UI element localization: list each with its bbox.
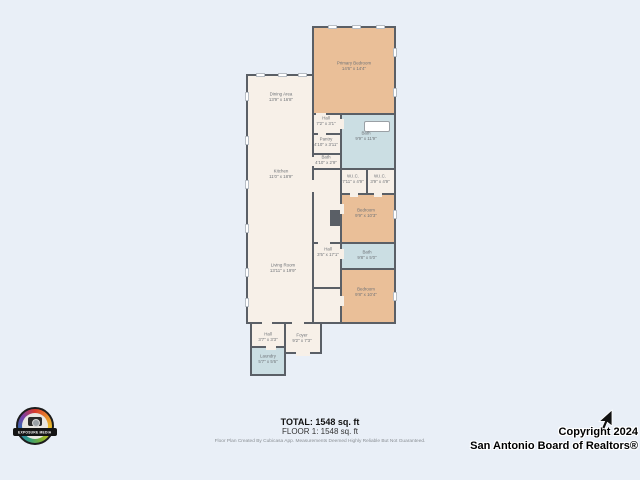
- room-label-foyer: Foyer9'2" x 7'3": [292, 333, 311, 344]
- window-mark: [245, 136, 249, 145]
- door-gap: [312, 180, 316, 192]
- room-label-kitchen: Kitchen11'0" x 18'9": [269, 169, 293, 180]
- room-label-bedroom-upper: Bedroom9'9" x 10'3": [355, 208, 377, 219]
- room-label-hall-top: Hall7'2" x 3'1": [316, 116, 335, 127]
- window-mark: [245, 224, 249, 233]
- window-mark: [393, 48, 397, 57]
- window-mark: [245, 268, 249, 277]
- room-label-bedroom-lower: Bedroom9'8" x 10'4": [355, 287, 377, 298]
- logo-brand-text: EXPOSURE MEDIA: [18, 430, 51, 434]
- window-mark: [376, 25, 385, 29]
- door-gap: [340, 204, 344, 214]
- room-label-living-room: Living Room13'11" x 19'9": [270, 263, 296, 274]
- room-label-bath-small: Bath4'10" x 2'9": [315, 155, 337, 166]
- logo-ribbon: EXPOSURE MEDIA: [13, 428, 57, 436]
- floor1-sqft-text: FLOOR 1: 1548 sq. ft: [282, 427, 358, 436]
- room-label-primary-bath: Bath9'9" x 11'9": [355, 131, 376, 142]
- window-mark: [278, 73, 287, 77]
- window-mark: [393, 88, 397, 97]
- room-label-hall-mid: Hall3'5" x 17'1": [317, 247, 339, 258]
- door-gap: [340, 296, 344, 306]
- window-mark: [245, 92, 249, 101]
- room-label-bath-mid: Bath9'8" x 5'0": [357, 250, 376, 261]
- room-bedroom-upper: [340, 193, 396, 244]
- room-label-wic-left: W.I.C.7'11" x 4'9": [342, 174, 363, 185]
- window-mark: [245, 180, 249, 189]
- room-main-open-area: [246, 74, 314, 324]
- window-mark: [328, 25, 337, 29]
- door-gap: [318, 242, 330, 246]
- door-gap: [340, 119, 344, 129]
- door-gap: [350, 193, 358, 197]
- room-label-primary-bedroom: Primary Bedroom14'6" x 14'4": [337, 61, 371, 72]
- room-label-pantry: Pantry4'10" x 3'11": [314, 137, 338, 148]
- hall-divider-wall: [314, 287, 340, 289]
- camera-icon: [28, 417, 42, 426]
- mouse-cursor-icon: [594, 408, 614, 432]
- door-gap: [374, 193, 382, 197]
- copyright-line2: San Antonio Board of Realtors®: [470, 440, 638, 454]
- room-label-hall-bottom: Hall3'7" x 3'3": [258, 332, 277, 343]
- room-passage: [312, 168, 342, 244]
- window-mark: [298, 73, 307, 77]
- exposure-media-logo: EXPOSURE MEDIA: [16, 407, 54, 445]
- window-mark: [245, 298, 249, 307]
- window-mark: [393, 292, 397, 301]
- door-gap: [266, 346, 276, 350]
- room-label-dining-area: Dining Area13'9" x 16'8": [269, 92, 293, 103]
- window-mark: [393, 210, 397, 219]
- window-mark: [256, 73, 265, 77]
- disclaimer-text: Floor Plan Created By Cubicasa App. Meas…: [215, 438, 426, 443]
- door-gap: [262, 322, 272, 326]
- door-gap: [340, 249, 344, 259]
- door-gap: [292, 322, 304, 326]
- room-label-laundry: Laundry5'7" x 5'6": [258, 354, 277, 365]
- floor-plan-page: Primary Bedroom14'6" x 14'4" Dining Area…: [0, 0, 640, 480]
- room-label-wic-right: W.I.C.3'9" x 4'9": [370, 174, 389, 185]
- window-mark: [352, 25, 361, 29]
- total-sqft-text: TOTAL: 1548 sq. ft: [281, 417, 360, 427]
- door-gap: [296, 352, 310, 356]
